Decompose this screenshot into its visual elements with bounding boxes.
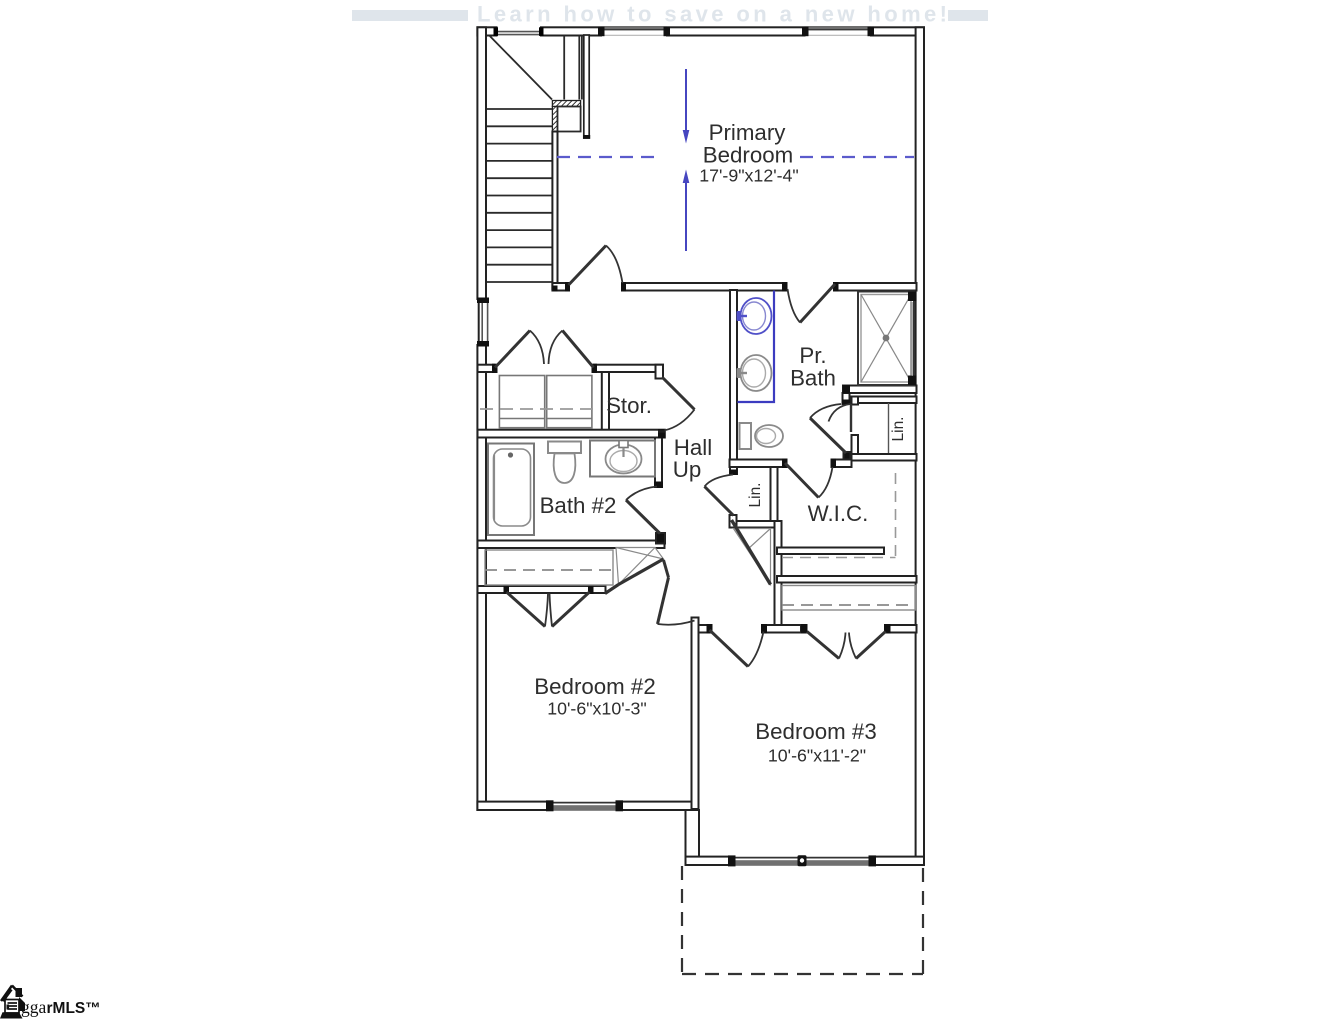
svg-text:Bedroom: Bedroom — [703, 143, 793, 168]
svg-text:10'-6"x10'-3": 10'-6"x10'-3" — [547, 699, 646, 719]
svg-text:Bedroom #3: Bedroom #3 — [755, 719, 876, 744]
svg-text:10'-6"x11'-2": 10'-6"x11'-2" — [768, 746, 866, 766]
svg-text:Bedroom #2: Bedroom #2 — [534, 674, 655, 699]
svg-text:17'-9"x12'-4": 17'-9"x12'-4" — [699, 166, 798, 186]
svg-text:Primary: Primary — [709, 120, 787, 145]
svg-text:Pr.: Pr. — [799, 343, 826, 368]
svg-text:Lin.: Lin. — [747, 483, 764, 508]
svg-text:Lin.: Lin. — [890, 417, 907, 442]
svg-text:Learn how to save on a new hom: Learn how to save on a new home! — [477, 2, 947, 27]
svg-text:rMLS™: rMLS™ — [47, 1000, 101, 1017]
svg-text:Up: Up — [673, 457, 702, 482]
svg-text:Bath: Bath — [790, 366, 836, 391]
svg-text:Bath #2: Bath #2 — [540, 493, 617, 518]
svg-text:Stor.: Stor. — [606, 393, 652, 418]
svg-text:gga: gga — [21, 997, 47, 1017]
svg-text:W.I.C.: W.I.C. — [808, 501, 869, 526]
